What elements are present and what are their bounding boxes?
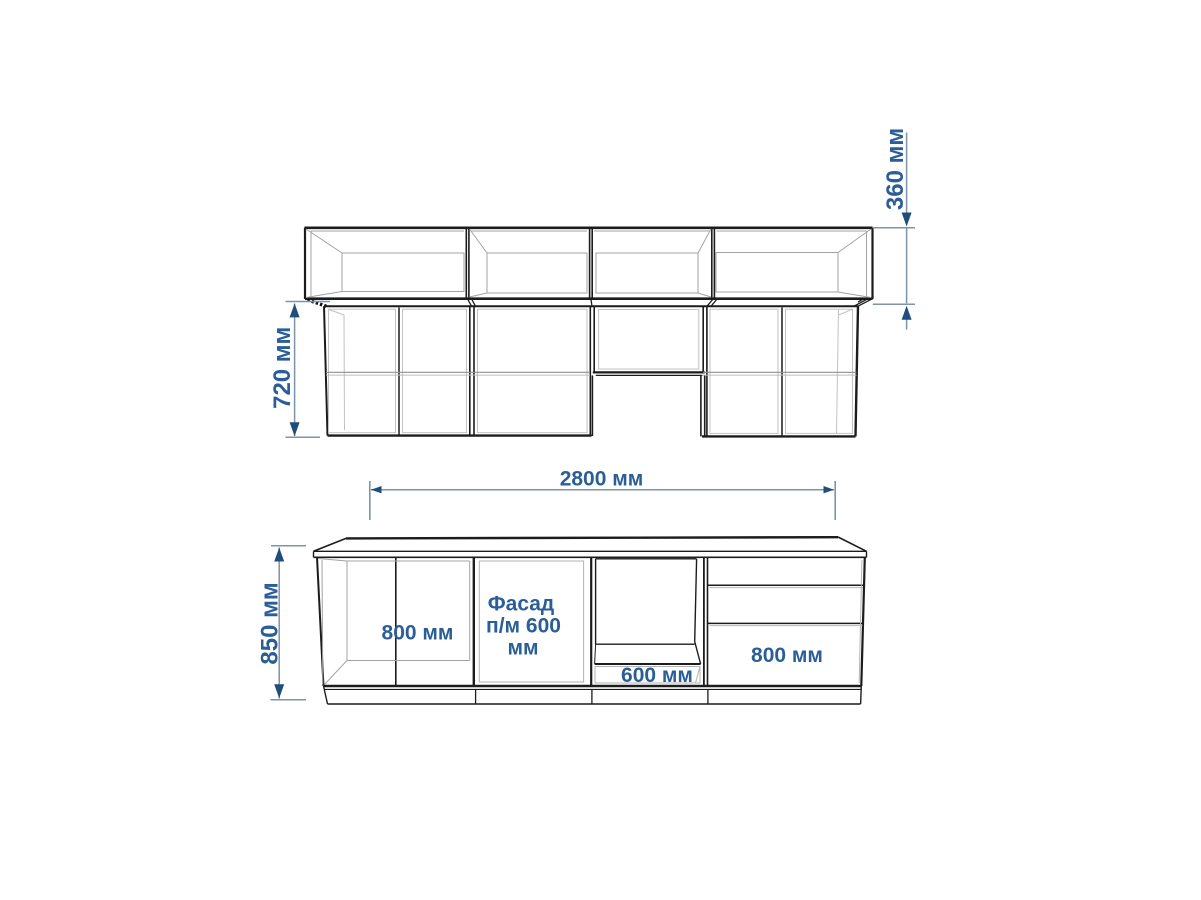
svg-text:600 мм: 600 мм xyxy=(621,664,693,687)
svg-text:800 мм: 800 мм xyxy=(382,622,454,645)
svg-text:720 мм: 720 мм xyxy=(269,327,296,409)
svg-text:мм: мм xyxy=(507,637,538,660)
svg-text:850 мм: 850 мм xyxy=(256,582,283,664)
svg-text:Фасад: Фасад xyxy=(488,593,555,616)
svg-text:800 мм: 800 мм xyxy=(751,644,823,667)
svg-text:п/м 600: п/м 600 xyxy=(486,615,561,638)
svg-text:360 мм: 360 мм xyxy=(882,128,909,210)
svg-text:2800 мм: 2800 мм xyxy=(560,468,644,491)
